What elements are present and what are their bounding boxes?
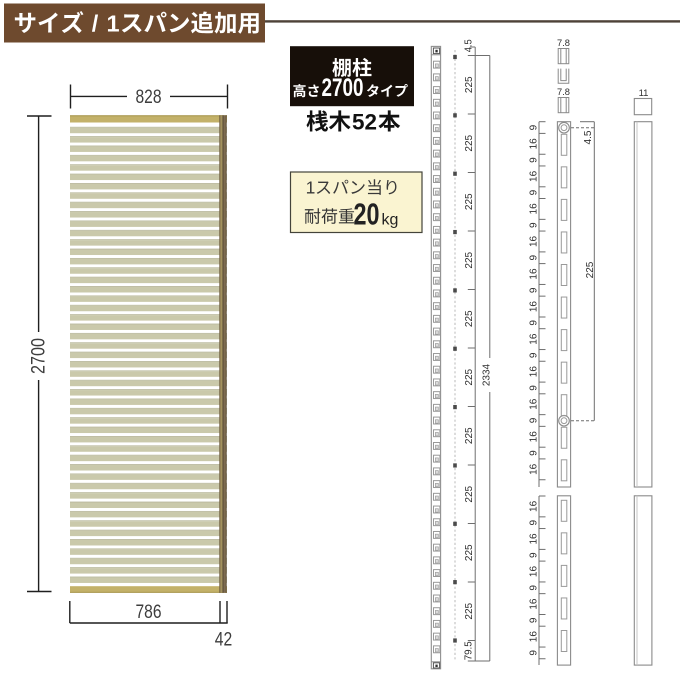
svg-text:16: 16 (529, 566, 540, 578)
svg-text:225: 225 (464, 602, 475, 619)
svg-text:42: 42 (215, 630, 233, 651)
svg-text:20: 20 (354, 198, 380, 232)
svg-text:16: 16 (529, 235, 540, 247)
svg-text:16: 16 (529, 463, 540, 475)
svg-text:16: 16 (529, 138, 540, 150)
svg-text:16: 16 (529, 333, 540, 345)
svg-text:9: 9 (529, 222, 540, 228)
svg-text:16: 16 (529, 203, 540, 215)
svg-text:11: 11 (639, 88, 649, 99)
svg-text:9: 9 (529, 320, 540, 326)
svg-text:9: 9 (529, 255, 540, 261)
svg-text:16: 16 (529, 301, 540, 313)
svg-text:225: 225 (464, 134, 475, 151)
svg-text:828: 828 (136, 86, 162, 108)
svg-text:9: 9 (529, 189, 540, 195)
svg-text:9: 9 (529, 617, 540, 623)
svg-text:1: 1 (306, 178, 316, 198)
svg-text:9: 9 (529, 450, 540, 456)
svg-text:2334: 2334 (482, 363, 493, 386)
svg-text:52: 52 (352, 110, 377, 135)
svg-text:786: 786 (136, 601, 162, 623)
svg-text:9: 9 (529, 385, 540, 391)
svg-text:2700: 2700 (322, 74, 364, 102)
svg-text:225: 225 (464, 310, 475, 327)
svg-text:9: 9 (529, 650, 540, 656)
svg-text:225: 225 (464, 193, 475, 210)
svg-text:9: 9 (529, 352, 540, 358)
svg-text:4.5: 4.5 (583, 130, 594, 144)
svg-text:16: 16 (529, 431, 540, 443)
svg-text:225: 225 (585, 261, 596, 278)
svg-text:16: 16 (529, 398, 540, 410)
svg-text:16: 16 (529, 268, 540, 280)
svg-text:225: 225 (464, 427, 475, 444)
svg-text:16: 16 (529, 500, 540, 512)
svg-text:9: 9 (529, 585, 540, 591)
svg-text:9: 9 (529, 417, 540, 423)
svg-text:16: 16 (529, 631, 540, 643)
svg-text:4.5: 4.5 (464, 39, 475, 52)
svg-text:16: 16 (529, 366, 540, 378)
svg-text:1: 1 (106, 11, 119, 37)
svg-text:9: 9 (529, 124, 540, 130)
svg-text:9: 9 (529, 552, 540, 558)
svg-text:225: 225 (464, 544, 475, 561)
svg-text:79.5: 79.5 (464, 641, 475, 660)
svg-text:9: 9 (529, 519, 540, 525)
svg-text:9: 9 (529, 157, 540, 163)
svg-text:16: 16 (529, 533, 540, 545)
svg-text:/: / (92, 11, 99, 37)
svg-text:225: 225 (464, 485, 475, 502)
svg-text:16: 16 (529, 598, 540, 610)
svg-text:225: 225 (464, 368, 475, 385)
svg-text:7.8: 7.8 (557, 38, 570, 49)
svg-text:225: 225 (464, 76, 475, 93)
svg-text:2700: 2700 (28, 338, 50, 374)
svg-text:9: 9 (529, 287, 540, 293)
svg-text:kg: kg (382, 212, 399, 229)
svg-text:7.8: 7.8 (557, 87, 570, 98)
svg-text:16: 16 (529, 170, 540, 182)
svg-text:225: 225 (464, 251, 475, 268)
